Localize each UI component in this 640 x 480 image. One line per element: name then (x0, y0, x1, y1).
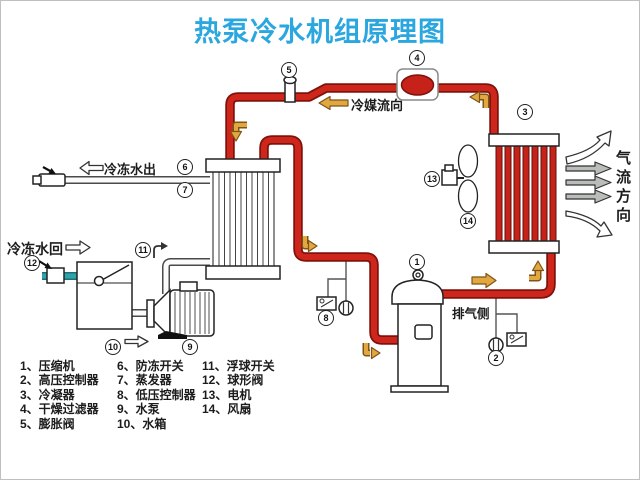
marker-fan: 14 (460, 213, 476, 229)
drier-filter (397, 69, 438, 100)
refrigerant-flow-left-arrow-icon (319, 97, 348, 110)
expansion-valve (284, 77, 296, 103)
outlet-fitting (33, 167, 65, 186)
marker-compressor: 1 (409, 254, 425, 270)
chilled-water-out-label: 冷冻水出 (104, 159, 156, 178)
legend-item: 3、冷凝器 (20, 388, 99, 402)
discharge-right-arrow-icon (472, 274, 496, 288)
legend-column-1: 1、压缩机 2、高压控制器 3、冷凝器 4、干燥过滤器 5、膨胀阀 (20, 359, 99, 431)
airflow-arrow-icon (566, 162, 611, 175)
legend-item: 10、水箱 (117, 417, 196, 431)
low-pressure-controller (317, 257, 353, 315)
chilled-water-return-arrow-icon (66, 241, 90, 254)
legend-item: 1、压缩机 (20, 359, 99, 373)
legend-item: 14、风扇 (202, 402, 275, 416)
flow-arrow-to-compressor-icon (366, 343, 380, 359)
marker-water-pump: 9 (182, 339, 198, 355)
marker-antifreeze-switch: 6 (177, 159, 193, 175)
airflow-direction-label: 气流方向 (612, 150, 633, 226)
marker-motor: 13 (424, 171, 440, 187)
flow-arrow-top-right-icon (470, 92, 486, 109)
airflow-arrow-icon (566, 190, 611, 203)
refrigerant-flow-label: 冷媒流向 (351, 95, 403, 114)
water-tank (77, 262, 132, 329)
diagram-canvas: 热泵冷水机组原理图 (0, 0, 640, 480)
marker-expansion-valve: 5 (281, 62, 297, 78)
airflow-arrows (566, 131, 612, 237)
flow-arrow-suction-elbow-icon (305, 236, 317, 252)
legend-item: 12、球形阀 (202, 373, 275, 387)
marker-evaporator: 7 (177, 182, 193, 198)
airflow-curved-bottom-icon (566, 211, 612, 237)
condenser (489, 134, 559, 253)
compressor (391, 270, 448, 392)
legend-column-2: 6、防冻开关 7、蒸发器 8、低压控制器 9、水泵 10、水箱 (117, 359, 196, 431)
legend-item: 7、蒸发器 (117, 373, 196, 387)
marker-condenser: 3 (517, 104, 533, 120)
water-pump (147, 282, 214, 339)
exhaust-side-label: 排气侧 (452, 303, 490, 322)
marker-float-switch: 11 (135, 242, 151, 258)
legend-item: 13、电机 (202, 388, 275, 402)
chilled-water-out-arrow-icon (80, 162, 103, 175)
legend-item: 9、水泵 (117, 402, 196, 416)
legend-item: 2、高压控制器 (20, 373, 99, 387)
high-pressure-controller (489, 294, 526, 352)
marker-hp-controller: 2 (488, 350, 504, 366)
tank-arrow-icon (125, 336, 148, 347)
legend-item: 6、防冻开关 (117, 359, 196, 373)
legend-item: 4、干燥过滤器 (20, 402, 99, 416)
evaporator (206, 159, 280, 279)
airflow-arrow-icon (566, 176, 611, 189)
legend-column-3: 11、浮球开关 12、球形阀 13、电机 14、风扇 (202, 359, 275, 417)
legend-item: 5、膨胀阀 (20, 417, 99, 431)
airflow-curved-top-icon (566, 131, 611, 164)
flow-arrow-up-condenser-icon (529, 261, 544, 278)
marker-lp-controller: 8 (318, 310, 334, 326)
legend-item: 11、浮球开关 (202, 359, 275, 373)
float-switch-arrow-icon (154, 242, 168, 258)
marker-drier-filter: 4 (409, 50, 425, 66)
legend-item: 8、低压控制器 (117, 388, 196, 402)
marker-ball-valve: 12 (24, 255, 40, 271)
marker-water-tank: 10 (105, 339, 121, 355)
